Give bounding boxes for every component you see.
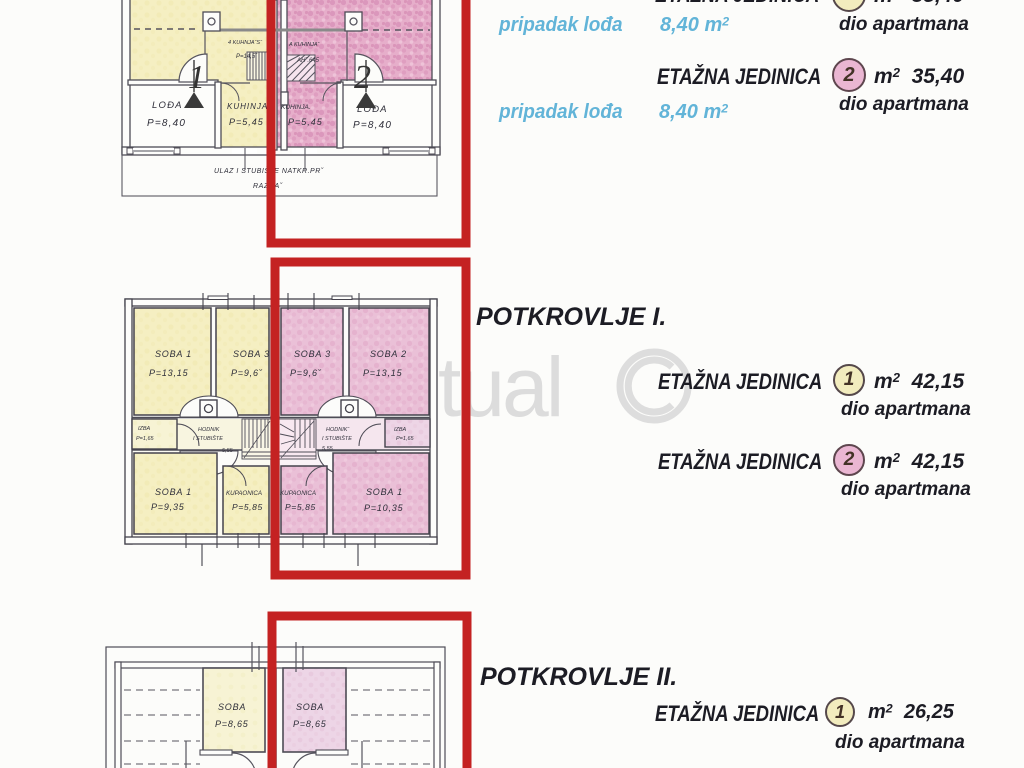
svg-text:SOBA 1: SOBA 1 (366, 487, 403, 497)
svg-text:SOBA: SOBA (296, 702, 324, 712)
svg-text:tual: tual (438, 340, 561, 434)
svg-text:KUPAONICA: KUPAONICA (226, 490, 262, 497)
svg-text:5,55: 5,55 (322, 446, 334, 452)
svg-text:I STUBIŠTE: I STUBIŠTE (322, 435, 352, 442)
svg-text:IZBA: IZBA (394, 427, 407, 433)
svg-text:AH˘.645: AH˘.645 (296, 57, 320, 64)
svg-text:SOBA 1: SOBA 1 (155, 349, 192, 359)
svg-text:P=5,45: P=5,45 (229, 117, 264, 127)
svg-text:LOĐA: LOĐA (152, 100, 183, 111)
svg-text:HODNIK: HODNIK (198, 427, 220, 433)
svg-text:P=8,65: P=8,65 (215, 719, 249, 729)
svg-text:5,55: 5,55 (222, 448, 234, 454)
svg-text:P=13,15: P=13,15 (363, 368, 403, 378)
svg-text:P=1,65: P=1,65 (136, 436, 155, 442)
svg-text:KUHINJA: KUHINJA (227, 102, 268, 111)
svg-text:KUHINJA.: KUHINJA. (281, 104, 311, 111)
svg-text:A KUHINJA˘: A KUHINJA˘ (288, 41, 321, 48)
svg-text:P=5,45: P=5,45 (288, 117, 323, 127)
svg-text:KUPAONICA: KUPAONICA (280, 490, 316, 497)
svg-text:I STUBIŠTE: I STUBIŠTE (193, 435, 223, 442)
svg-text:SOBA: SOBA (218, 702, 246, 712)
svg-text:SOBA 3: SOBA 3 (233, 349, 270, 359)
svg-text:2: 2 (354, 59, 371, 96)
svg-text:HODNIK˘: HODNIK˘ (326, 426, 350, 433)
svg-text:P=9,6˘: P=9,6˘ (231, 368, 263, 378)
svg-text:SOBA 2: SOBA 2 (370, 349, 407, 359)
svg-text:P=9,6˘: P=9,6˘ (290, 368, 322, 378)
svg-text:P=5,85: P=5,85 (232, 502, 263, 512)
svg-text:P=5,85: P=5,85 (285, 502, 316, 512)
svg-text:P=8,65: P=8,65 (293, 719, 327, 729)
svg-text:SOBA 3: SOBA 3 (294, 349, 331, 359)
svg-text:1: 1 (188, 59, 205, 96)
svg-text:P=1,65: P=1,65 (396, 436, 415, 442)
svg-text:P=14,5˘: P=14,5˘ (236, 53, 258, 60)
svg-text:P=8,40: P=8,40 (353, 120, 392, 131)
svg-text:P=10,35: P=10,35 (364, 503, 404, 513)
svg-text:4 KUHNJA˘S˘: 4 KUHNJA˘S˘ (228, 39, 263, 46)
svg-text:P=13,15: P=13,15 (149, 368, 189, 378)
svg-text:IZBA: IZBA (138, 426, 151, 432)
svg-text:P=8,40: P=8,40 (147, 118, 186, 129)
svg-text:P=9,35: P=9,35 (151, 502, 185, 512)
svg-text:SOBA 1: SOBA 1 (155, 487, 192, 497)
